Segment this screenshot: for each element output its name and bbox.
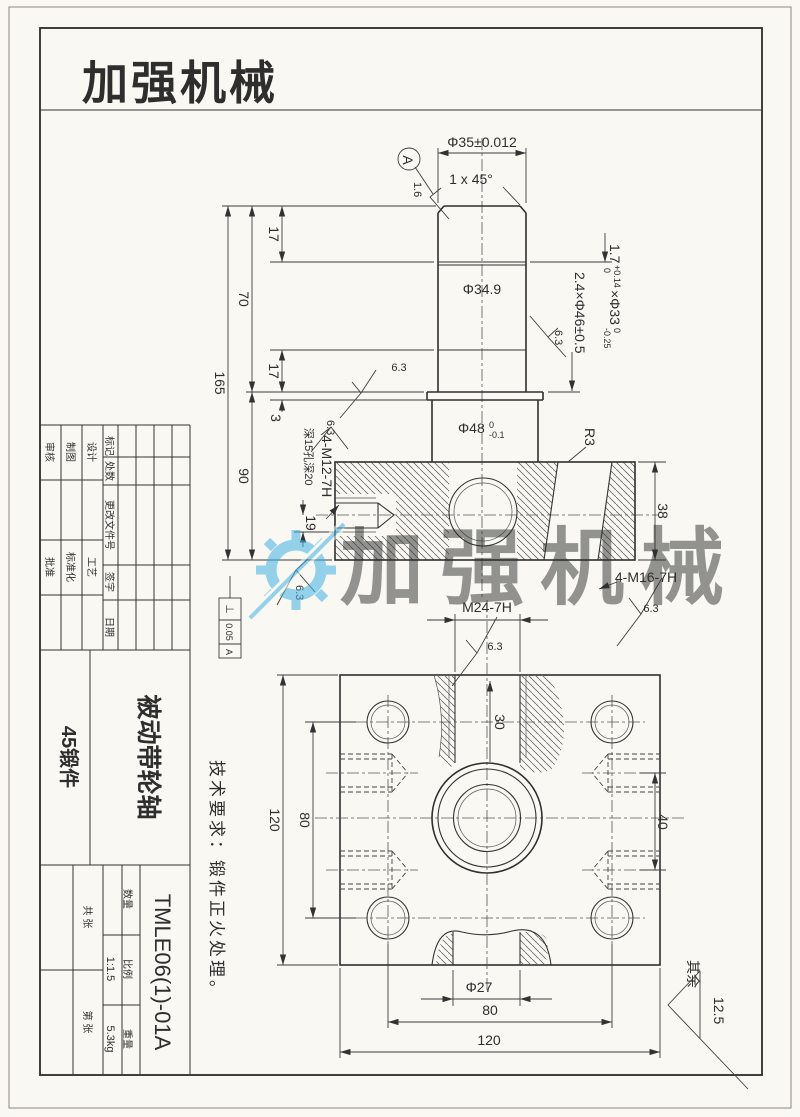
svg-text:0: 0 (489, 420, 494, 430)
svg-text:-0.1: -0.1 (489, 430, 505, 440)
dim-120-left: 120 (267, 808, 283, 832)
dim-30: 30 (492, 714, 508, 730)
tb-design: 设计 (85, 442, 98, 462)
dim-38: 38 (655, 503, 671, 519)
dim-80-bottom: 80 (482, 1002, 498, 1018)
tb-count: 处数 (103, 461, 116, 481)
fcf-datum: A (224, 649, 234, 655)
svg-text:×Φ33: ×Φ33 (607, 290, 623, 325)
tb-process: 工艺 (85, 557, 97, 577)
tb-weight-value: 5.3kg (104, 1026, 116, 1053)
dim-m12-depth: 深15孔深20 (302, 428, 315, 485)
fcf-symbol: ⊥ (223, 604, 235, 614)
tb-date: 日期 (103, 617, 115, 637)
dim-3: 3 (268, 414, 284, 422)
others-roughness-icon (668, 971, 748, 1089)
title-block: 标记 处数 更改文件号 签字 日期 设计 制图 审核 工艺 标准化 批准 被动带… (40, 425, 190, 1075)
shaft-outline (427, 206, 543, 462)
dim-17-top: 17 (266, 226, 282, 242)
tb-standard: 标准化 (64, 552, 77, 582)
roughness-63-a: 6.3 (391, 362, 406, 374)
dim-r3: R3 (582, 428, 598, 446)
watermark: 加强机械 (250, 521, 740, 618)
technical-requirements: 技术要求：锻件正火处理。 (207, 760, 226, 1000)
dim-90: 90 (236, 468, 252, 484)
tb-check: 审核 (43, 442, 56, 462)
tb-draft: 制图 (64, 442, 77, 462)
dim-165: 165 (212, 371, 228, 395)
tb-material: 45锻件 (57, 726, 81, 788)
tb-sheet-index: 第 张 (81, 1011, 94, 1034)
company-logo: 加强机械 (82, 57, 278, 109)
dim-phi349: Φ34.9 (463, 281, 502, 297)
tb-sheet-total: 共 张 (81, 906, 93, 929)
watermark-text: 加强机械 (340, 521, 740, 615)
tb-weight-label: 重量 (121, 1029, 134, 1049)
tb-mark: 标记 (103, 436, 115, 456)
tb-approve: 批准 (43, 557, 56, 577)
dim-120-bottom: 120 (477, 1032, 501, 1048)
corner-holes (367, 701, 633, 939)
datum-a-label: A (400, 155, 416, 165)
dim-m12: 4-M12-7H (319, 435, 335, 497)
gear-icon (250, 524, 344, 618)
svg-text:0: 0 (612, 328, 622, 333)
others-value: 12.5 (711, 997, 727, 1024)
dim-19: 19 (303, 515, 319, 531)
fcf-value: 0.05 (224, 623, 234, 641)
tb-docno: 更改文件号 (103, 500, 116, 550)
tb-drawing-no: TMLE06(1)-01A (150, 894, 175, 1051)
tb-scale-label: 比例 (121, 959, 134, 979)
roughness-63-e: 6.3 (487, 641, 502, 653)
svg-text:1.7: 1.7 (607, 244, 623, 264)
svg-text:0: 0 (602, 268, 612, 273)
dim-phi48: Φ48 0 -0.1 (458, 420, 505, 440)
dim-r16: 1.6 (411, 182, 423, 197)
perpendicularity-frame-icon: ⊥ 0.05 A (219, 576, 241, 658)
dim-phi27: Φ27 (466, 979, 493, 995)
dim-phi35: Φ35±0.012 (447, 134, 517, 150)
scanned-drawing-page: 加强机械 (0, 0, 800, 1117)
dim-17-mid: 17 (266, 363, 282, 379)
dim-chamfer: 1 x 45° (449, 171, 493, 187)
roughness-63-b: 6.3 (324, 420, 336, 435)
svg-text:+0.14: +0.14 (612, 265, 622, 288)
phi27-partial-section (432, 930, 551, 965)
others-label: 其余 (685, 960, 701, 988)
dim-80-left: 80 (297, 812, 313, 828)
drawing-sheet: 加强机械 (0, 0, 800, 1117)
dim-groove2: 2.4×Φ46±0.5 (572, 272, 588, 354)
bottom-view (315, 600, 685, 990)
svg-text:-0.25: -0.25 (602, 328, 612, 349)
dim-70: 70 (236, 291, 252, 307)
tb-qty-label: 数量 (121, 889, 134, 909)
tb-part-name: 被动带轮轴 (134, 694, 163, 819)
svg-text:Φ48: Φ48 (458, 420, 485, 436)
tb-scale-value: 1:1.5 (104, 957, 116, 981)
tb-sign: 签字 (103, 572, 116, 592)
dim-40: 40 (655, 814, 671, 830)
roughness-63-d: 6.3 (552, 330, 564, 345)
